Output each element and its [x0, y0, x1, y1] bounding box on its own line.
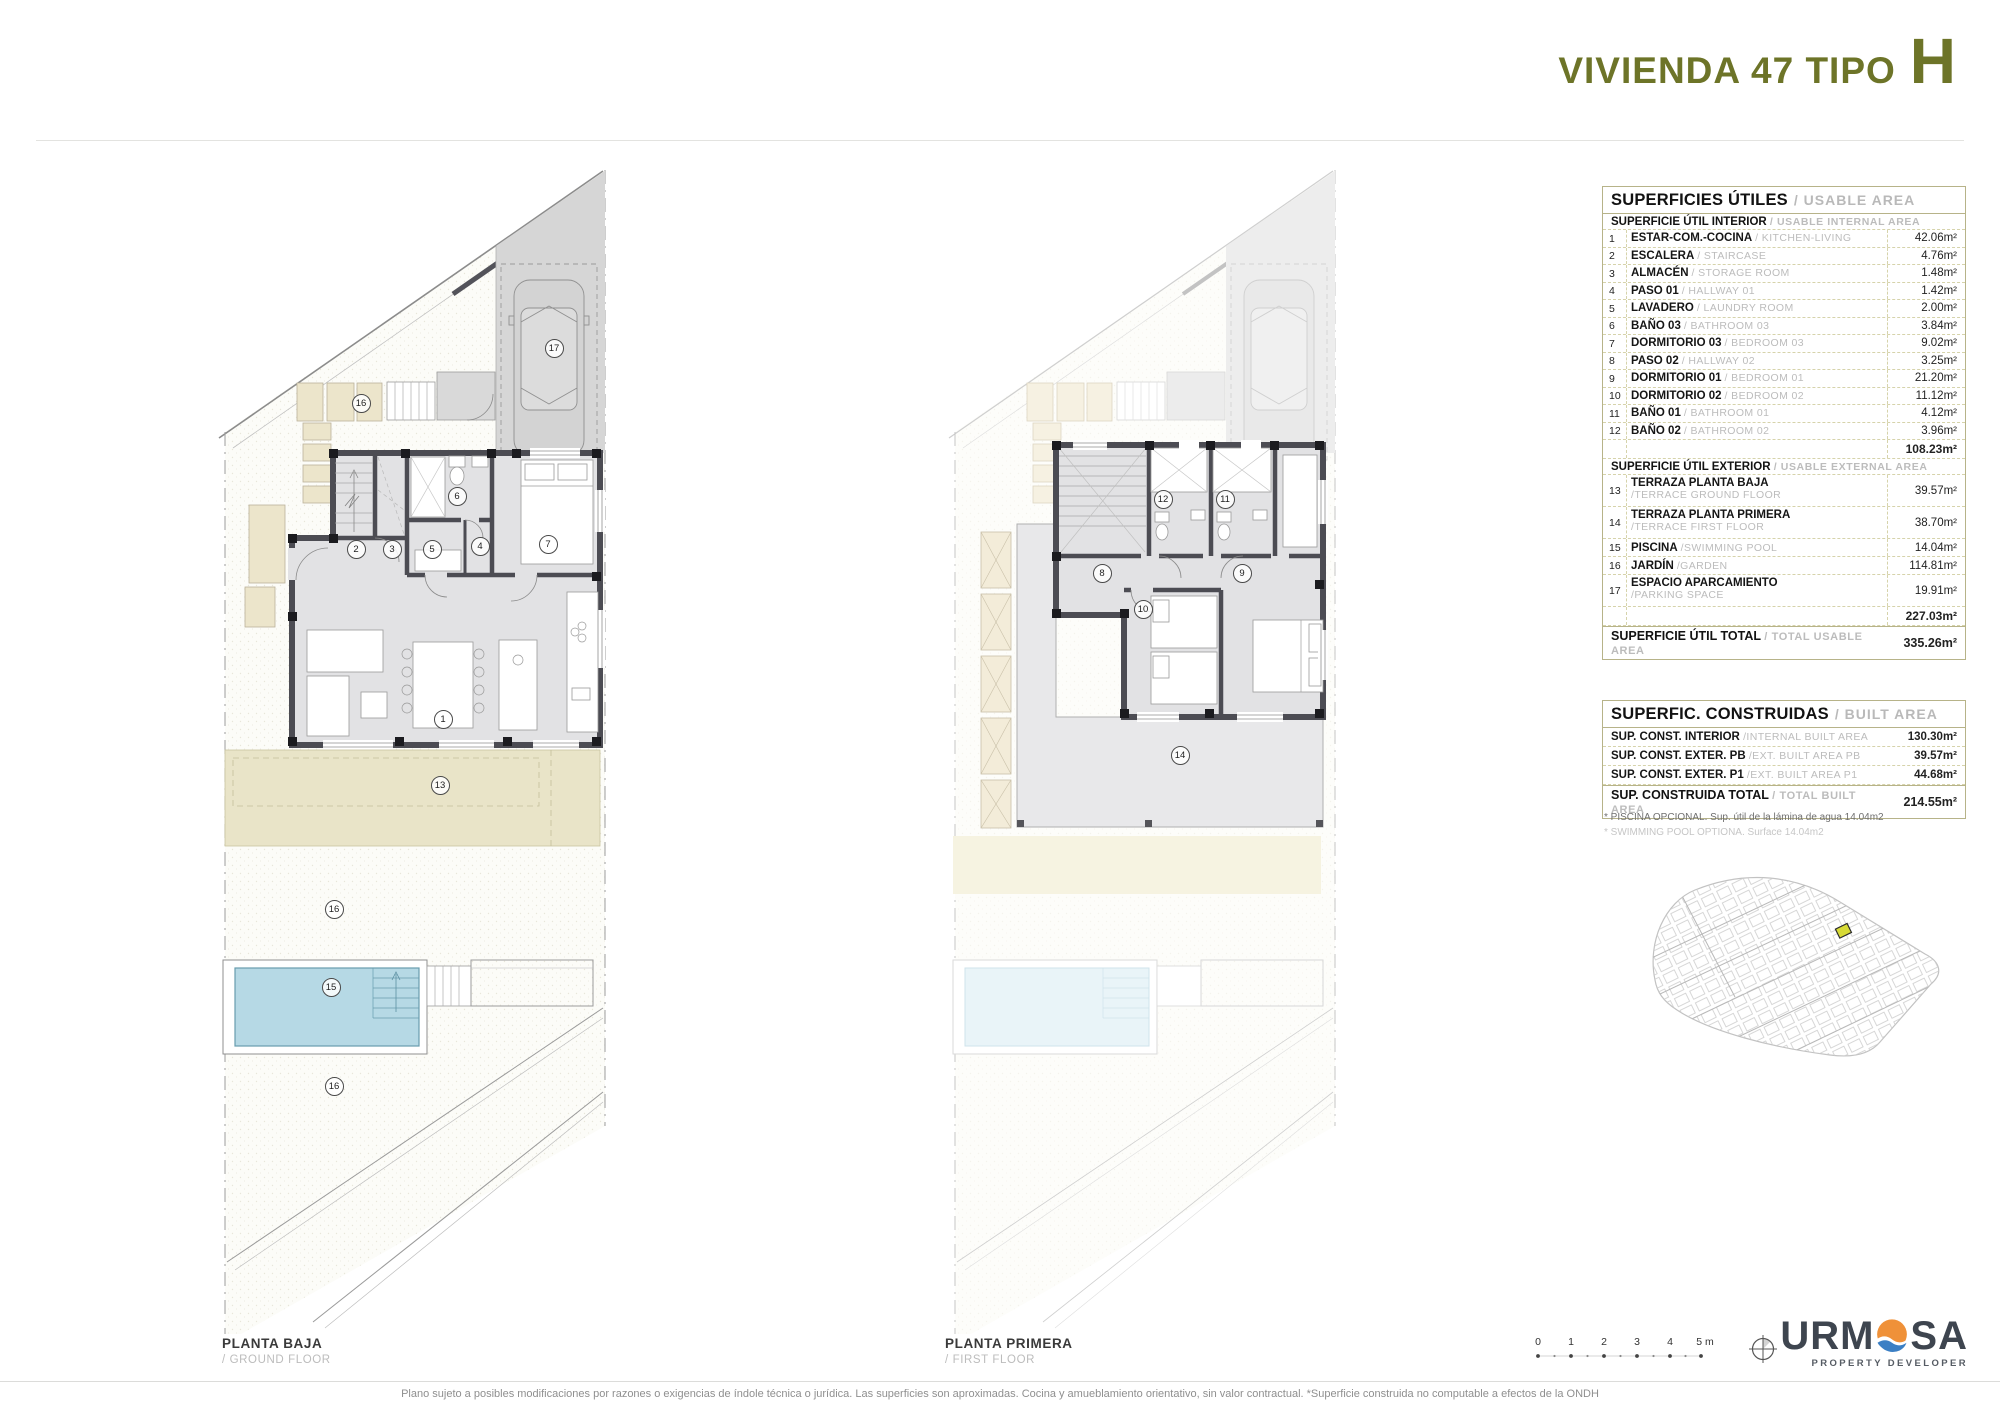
usable-area-title: SUPERFICIES ÚTILES / USABLE AREA [1603, 187, 1965, 214]
exterior-subtotal-row: 227.03m² [1603, 607, 1965, 626]
room-marker: 9 [1233, 564, 1252, 583]
first-floor-label-block: PLANTA PRIMERA / FIRST FLOOR [945, 1336, 1073, 1366]
table-row: 4PASO 01/ HALLWAY 011.42m² [1603, 283, 1965, 301]
first-floor-sublabel: / FIRST FLOOR [945, 1354, 1073, 1366]
room-marker: 14 [1171, 746, 1190, 765]
room-marker: 10 [1134, 600, 1153, 619]
room-marker: 13 [431, 776, 450, 795]
built-title-en: / BUILT AREA [1835, 706, 1938, 722]
exterior-header-en: / USABLE EXTERNAL AREA [1774, 461, 1928, 473]
table-row: 8PASO 02/ HALLWAY 023.25m² [1603, 353, 1965, 371]
svg-text:4: 4 [1667, 1336, 1673, 1348]
table-row: 9DORMITORIO 01/ BEDROOM 0121.20m² [1603, 370, 1965, 388]
table-row: SUP. CONST. EXTER. PB /EXT. BUILT AREA P… [1603, 747, 1965, 766]
interior-header-en: / USABLE INTERNAL AREA [1770, 216, 1920, 228]
table-row: 3ALMACÉN/ STORAGE ROOM1.48m² [1603, 265, 1965, 283]
table-row: 13TERRAZA PLANTA BAJA/TERRACE GROUND FLO… [1603, 475, 1965, 507]
table-row: 1ESTAR-COM.-COCINA/ KITCHEN-LIVING42.06m… [1603, 230, 1965, 248]
table-row: 6BAÑO 03/ BATHROOM 033.84m² [1603, 318, 1965, 336]
page-title: VIVIENDA 47 TIPO H [1558, 36, 1956, 92]
room-marker: 2 [347, 540, 366, 559]
first-floor-drawing [945, 160, 1515, 1340]
scale-bar: 0 1 2 3 4 5 m [1533, 1334, 1717, 1364]
ghost-car-icon [1244, 280, 1314, 456]
ground-floor-label-block: PLANTA BAJA / GROUND FLOOR [222, 1336, 331, 1366]
table-row: 10DORMITORIO 02/ BEDROOM 0211.12m² [1603, 388, 1965, 406]
table-row: 11BAÑO 01/ BATHROOM 014.12m² [1603, 405, 1965, 423]
interior-header-es: SUPERFICIE ÚTIL INTERIOR [1611, 216, 1767, 228]
disclaimer-text: Plano sujeto a posibles modificaciones p… [0, 1388, 2000, 1400]
plan-sheet: VIVIENDA 47 TIPO H [0, 0, 2000, 1414]
usable-total-row: SUPERFICIE ÚTIL TOTAL / TOTAL USABLE ARE… [1603, 626, 1965, 659]
ground-floor-drawing [215, 160, 785, 1340]
ground-floor-sublabel: / GROUND FLOOR [222, 1354, 331, 1366]
table-row: SUP. CONST. INTERIOR /INTERNAL BUILT ARE… [1603, 728, 1965, 747]
room-marker: 17 [545, 339, 564, 358]
room-marker: 16 [352, 394, 371, 413]
exterior-section-header: SUPERFICIE ÚTIL EXTERIOR / USABLE EXTERN… [1603, 459, 1965, 475]
built-area-title: SUPERFIC. CONSTRUIDAS / BUILT AREA [1603, 701, 1965, 728]
room-marker: 6 [448, 487, 467, 506]
car-icon [509, 280, 589, 456]
table-row: 17ESPACIO APARCAMIENTO/PARKING SPACE19.9… [1603, 575, 1965, 607]
pool-note-es: * PISCINA OPCIONAL. Sup. útil de la lámi… [1604, 810, 1884, 825]
first-floor-plan: 12 11 8 9 10 14 [945, 160, 1515, 1340]
logo-text-right: SA [1910, 1316, 1968, 1356]
room-marker: 16 [325, 1077, 344, 1096]
svg-text:2: 2 [1601, 1336, 1607, 1348]
site-location-map [1625, 862, 1955, 1074]
built-area-table: SUPERFIC. CONSTRUIDAS / BUILT AREA SUP. … [1602, 700, 1966, 819]
table-row: 12BAÑO 02/ BATHROOM 023.96m² [1603, 423, 1965, 441]
table-row: 2ESCALERA/ STAIRCASE4.76m² [1603, 248, 1965, 266]
room-marker: 12 [1154, 490, 1173, 509]
pool-note-en: * SWIMMING POOL OPTIONA. Surface 14.04m2 [1604, 825, 1884, 840]
ground-floor-label: PLANTA BAJA [222, 1336, 331, 1351]
sun-wave-icon [1875, 1319, 1909, 1353]
exterior-header-es: SUPERFICIE ÚTIL EXTERIOR [1611, 461, 1771, 473]
ground-floor-plan: 17 16 6 7 2 3 5 4 1 13 16 15 16 [215, 160, 785, 1340]
footer-divider [0, 1381, 2000, 1382]
first-floor-label: PLANTA PRIMERA [945, 1336, 1073, 1351]
table-row: 14TERRAZA PLANTA PRIMERA/TERRACE FIRST F… [1603, 507, 1965, 539]
room-marker: 1 [434, 710, 453, 729]
title-prefix: VIVIENDA 47 TIPO [1558, 50, 1895, 92]
room-marker: 15 [322, 978, 341, 997]
svg-text:0: 0 [1535, 1336, 1541, 1348]
developer-logo: URM SA PROPERTY DEVELOPER [1788, 1316, 1968, 1369]
room-marker: 7 [539, 535, 558, 554]
table-row: 5LAVADERO/ LAUNDRY ROOM2.00m² [1603, 300, 1965, 318]
table-row: SUP. CONST. EXTER. P1 /EXT. BUILT AREA P… [1603, 766, 1965, 785]
svg-text:5 m: 5 m [1696, 1336, 1714, 1348]
built-title-es: SUPERFIC. CONSTRUIDAS [1611, 705, 1829, 724]
svg-text:3: 3 [1634, 1336, 1640, 1348]
table-row: 7DORMITORIO 03/ BEDROOM 039.02m² [1603, 335, 1965, 353]
room-marker: 16 [325, 900, 344, 919]
svg-text:1: 1 [1568, 1336, 1574, 1348]
interior-subtotal-row: 108.23m² [1603, 440, 1965, 459]
room-marker: 3 [383, 540, 402, 559]
interior-section-header: SUPERFICIE ÚTIL INTERIOR / USABLE INTERN… [1603, 214, 1965, 230]
logo-subtitle: PROPERTY DEVELOPER [1811, 1358, 1968, 1369]
room-marker: 8 [1093, 564, 1112, 583]
pool-notes: * PISCINA OPCIONAL. Sup. útil de la lámi… [1604, 810, 1884, 840]
usable-area-table: SUPERFICIES ÚTILES / USABLE AREA SUPERFI… [1602, 186, 1966, 660]
header-divider [36, 140, 1964, 141]
logo-text-left: URM [1780, 1316, 1874, 1356]
title-type-letter: H [1910, 36, 1956, 87]
room-marker: 4 [471, 537, 490, 556]
table-row: 15PISCINA/SWIMMING POOL14.04m² [1603, 539, 1965, 557]
usable-title-en: / USABLE AREA [1794, 192, 1915, 208]
usable-title-es: SUPERFICIES ÚTILES [1611, 191, 1788, 210]
room-marker: 11 [1216, 490, 1235, 509]
room-marker: 5 [423, 540, 442, 559]
north-arrow-icon [1748, 1334, 1778, 1364]
table-row: 16JARDÍN/GARDEN114.81m² [1603, 557, 1965, 575]
